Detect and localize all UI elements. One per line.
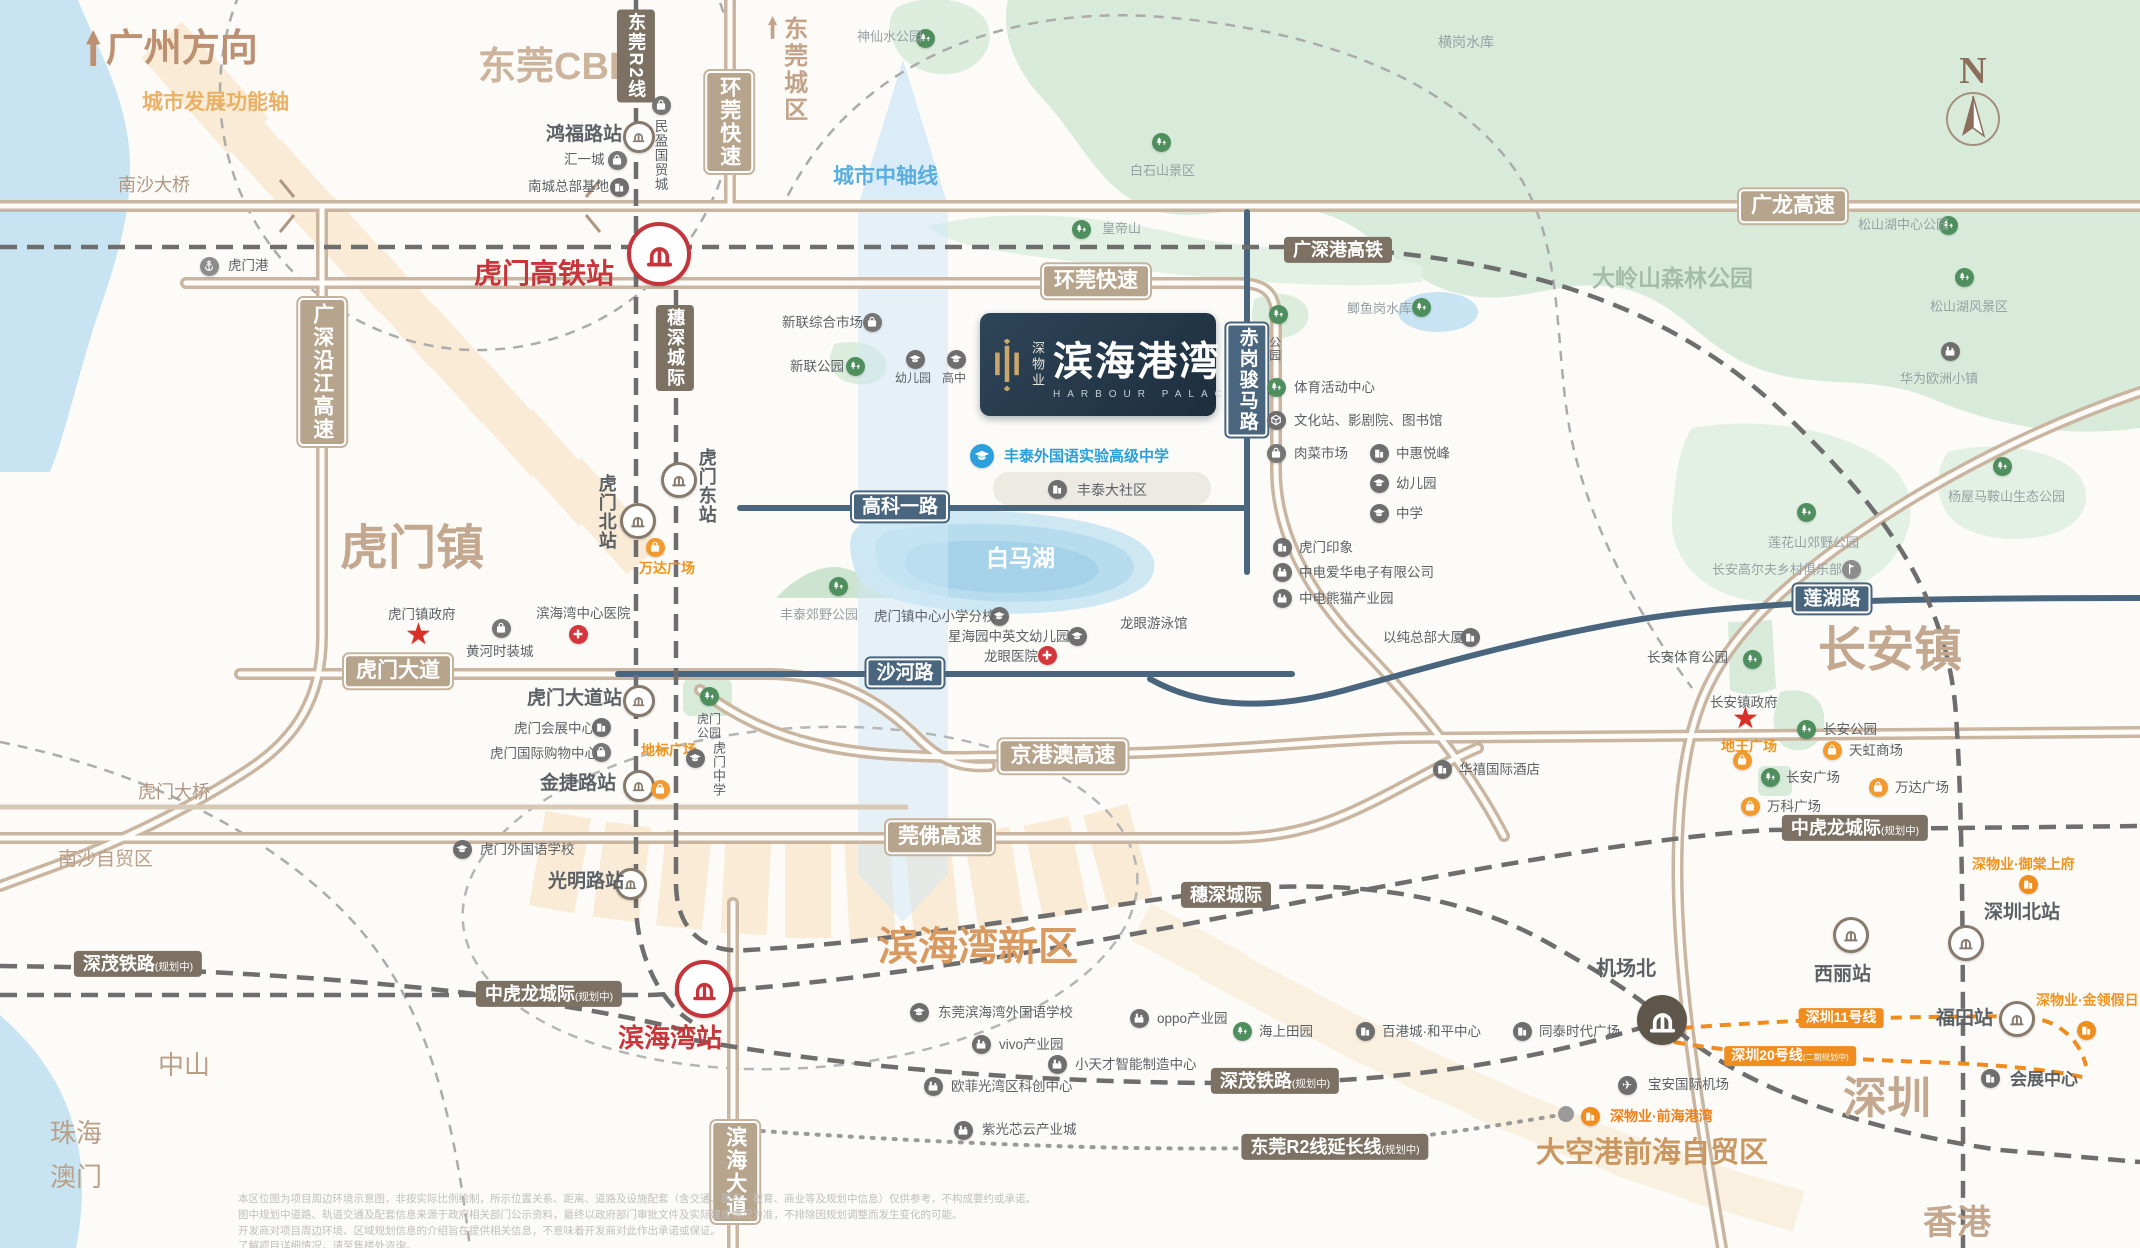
area-label-5: 长安镇 [1818,626,1962,676]
metro-station-icon [661,462,697,498]
line-label-text: 莲湖路 [1803,588,1860,609]
poi-label: 深物业·御棠上府 [1972,856,2075,872]
tree-icon [1267,378,1286,397]
poi-label: 同泰时代广场 [1539,1024,1620,1040]
line-label-22: 深圳20号线(二期规划中) [1724,1046,1856,1066]
bld-icon [1981,1069,2000,1088]
poi-label: 滨海湾中心医院 [536,606,631,622]
poi-label: 深物业·前海港湾 [1610,1108,1713,1124]
metro-station-icon [620,503,656,539]
anchor-icon [200,257,219,276]
line-label-18: 沙河路 [866,658,943,687]
disclaimer-line: 本区位图为项目周边环境示意图，非按实际比例绘制，所示位置关系、距离、道路及设施配… [238,1192,1188,1208]
bagO-icon [1869,778,1888,797]
poi-label: 虎门印象 [1299,540,1353,556]
cap-icon [686,749,705,768]
poi-label: 福田站 [1936,1008,1993,1030]
bagO-icon [651,780,670,799]
poi-label: 以纯总部大厦 [1383,630,1464,646]
tree-icon [1072,220,1091,239]
bagO-icon [646,538,665,557]
poi-label: 光明路站 [548,871,624,893]
line-label-text: 中虎龙城际 [1791,818,1881,838]
poi-label: 民盈国贸城 [652,119,668,192]
tree-icon [1955,268,1974,287]
area-label-8: 深圳 [1843,1076,1931,1122]
capB-icon [970,444,994,468]
area-label-text: 东莞CBD [478,48,636,88]
line-label-6: 广深沿江高速 [298,298,346,446]
area-label-7: 大空港前海自贸区 [1536,1138,1768,1168]
area-label-10: 中山 [158,1052,210,1079]
line-label-text: 赤岗骏马路 [1237,328,1258,433]
poi-label: 紫光芯云产业城 [982,1122,1077,1138]
poi-label: 虎门镇政府 [388,607,456,623]
cap-icon [910,1003,929,1022]
area-label-9: 香港 [1923,1206,1991,1242]
area-label-text: 南沙大桥 [118,176,190,195]
poi-label: 虎门港 [228,258,269,274]
poi-label: 虎门镇中心小学分校 [874,609,996,625]
poi-label: 虎门东站 [696,448,717,524]
harbour-palace-logo-icon [990,339,1024,391]
line-label-20: 赤岗骏马路 [1226,324,1267,437]
poi-label: 西丽站 [1814,964,1871,986]
poi-label: 星海园中英文幼儿园 [948,629,1070,645]
compass: N [1942,52,2004,153]
line-label-text: 深茂铁路 [1220,1071,1292,1091]
poi-label: 龙眼医院 [984,649,1038,665]
line-label-3: 京港澳高速 [999,739,1128,773]
fac-icon [972,1035,991,1054]
line-label-4: 莞佛高速 [886,820,994,854]
line-label-21: 深圳11号线 [1799,1008,1884,1028]
metro-station-icon [623,685,655,717]
poi-label: 黄河时装城 [466,644,534,660]
city-axis-band [858,60,948,922]
cube-icon [1267,411,1286,430]
poi-label: 公园 [1267,336,1281,362]
poi-label: 虎门高铁站 [474,258,614,290]
poi-label: 文化站、影剧院、图书馆 [1294,413,1443,429]
area-label-text: 深圳 [1843,1076,1931,1122]
metro-station-icon [1999,1001,2035,1037]
area-label-text: 东莞城区 [780,16,805,124]
disclaimer-text: 本区位图为项目周边环境示意图，非按实际比例绘制，所示位置关系、距离、道路及设施配… [238,1192,1188,1248]
line-label-11: 穗深城际 [1181,882,1271,908]
poi-label: 丰泰大社区 [1077,482,1147,498]
poi-label: 虎门国际购物中心 [490,746,598,762]
poi-label: 华禧国际酒店 [1459,762,1540,778]
line-label-13: 中虎龙城际(规划中) [1782,815,1928,841]
line-label-8: 广深港高铁 [1284,237,1392,263]
poi-label: 金捷路站 [540,773,616,795]
poi-label: 幼儿园 [895,372,931,386]
line-label-text: 穗深城际 [1190,885,1262,905]
tree-icon [1743,650,1762,669]
line-label-suffix: (规划中) [1292,1079,1330,1090]
area-label-text: 广州方向 [106,30,258,70]
poi-label: 小天才智能制造中心 [1075,1057,1197,1073]
area-label-text: 大空港前海自贸区 [1536,1138,1768,1168]
poi-label: 深圳北站 [1984,902,2060,924]
area-label-17: 白马湖 [986,546,1055,570]
poi-label: 虎门外国语学校 [480,842,575,858]
line-label-text: 东莞R2线延长线 [1250,1137,1381,1157]
metro-station-icon [1948,925,1984,961]
project-logo-card: 深物业 滨海港湾 HARBOUR PALACE [980,313,1216,416]
line-label-suffix: (规划中) [1381,1145,1419,1156]
line-label-12: 中虎龙城际(规划中) [476,981,622,1007]
metro-station-icon [623,770,655,802]
poi-label: 汇一城 [564,152,605,168]
railway-station-icon [1637,995,1687,1045]
tree-icon [700,687,719,706]
area-label-1: 城市发展功能轴 [142,92,289,114]
area-label-text: 滨海湾新区 [878,926,1078,968]
line-label-text: 广深港高铁 [1293,240,1383,260]
area-label-text: 城市中轴线 [833,166,938,188]
tree-icon [1993,457,2012,476]
poi-label: 丰泰郊野公园 [780,608,858,623]
fac-icon [924,1077,943,1096]
poi-label: 深物业·金领假日 [2036,992,2139,1008]
poi-label: 长安公园 [1823,722,1877,738]
tree-icon [1412,298,1431,317]
project-name-en: HARBOUR PALACE [1053,389,1243,400]
bld-icon [1513,1022,1532,1041]
line-label-0: 环莞快速 [705,71,753,173]
area-label-text: 大岭山森林公园 [1592,266,1753,290]
poi-label: 虎门公园 [692,713,726,741]
tree-icon [1233,1022,1252,1041]
direction-arrow-icon [768,16,777,39]
line-label-text: 沙河路 [876,662,933,683]
tree-icon [846,357,865,376]
line-label-2: 广龙高速 [1739,189,1847,223]
poi-label: 长安体育公园 [1647,650,1728,666]
line-label-text: 高科一路 [862,496,938,517]
cap-icon [1370,504,1389,523]
poi-label: 莲花山郊野公园 [1768,536,1859,551]
area-label-text: 长安镇 [1818,626,1962,676]
poi-label: 会展中心 [2010,1070,2078,1090]
line-label-suffix: (规划中) [575,992,613,1003]
cap-icon [1068,627,1087,646]
bld-icon [1356,1022,1375,1041]
bld-icon [1433,760,1452,779]
location-map: N 深物业 滨海港湾 HARBOUR PALACE 广 [0,0,2140,1248]
bldO-icon [2077,1021,2096,1040]
bag-icon [492,619,511,638]
poi-label: 南城总部基地 [528,179,609,195]
poi-label: 万科广场 [1767,799,1821,815]
line-label-14: 深茂铁路(规划中) [74,951,202,977]
poi-label: 虎门北站 [596,474,617,550]
poi-label: 虎门大道站 [527,688,622,710]
poi-label: 幼儿园 [1396,476,1437,492]
line-label-text: 环莞快速 [718,76,741,168]
area-label-18: 城市中轴线 [833,166,938,188]
tree-icon [1269,305,1288,324]
airport-icon: ✈ [1618,1076,1637,1095]
line-label-text: 广龙高速 [1751,194,1835,217]
poi-label: 东莞滨海湾外国语学校 [938,1005,1073,1021]
bldO-icon [1581,1107,1600,1126]
area-label-text: 中山 [158,1052,210,1079]
disclaimer-line: 开发商对项目周边环境、区域规划信息的介绍旨在提供相关信息，不意味着开发商对此作出… [238,1224,1188,1240]
line-label-suffix: (规划中) [155,962,193,973]
area-label-0: 广州方向 [86,30,258,70]
fac-icon [1048,1055,1067,1074]
bagO-icon [1741,797,1760,816]
poi-label: 丰泰外国语实验高级中学 [1004,448,1169,465]
fac-icon [954,1121,973,1140]
line-label-text: 虎门大道 [356,659,440,682]
fac-icon [1941,342,1960,361]
r2-extension-line [718,1106,1574,1149]
poi-label: 高中 [942,372,966,386]
poi-label: 长安广场 [1786,770,1840,786]
area-label-text: 白马湖 [986,546,1055,570]
direction-arrow-icon [86,30,100,66]
poi-label: 长安镇政府 [1710,695,1778,711]
poi-label: 皇帝山 [1102,222,1141,237]
line-label-text: 深茂铁路 [83,954,155,974]
area-label-13: 南沙自贸区 [58,850,153,870]
bag-icon [1267,444,1286,463]
area-label-text: 虎门大桥 [138,783,210,802]
poi-label: 杨屋马鞍山生态公园 [1948,490,2065,505]
railway-station-icon [675,960,733,1018]
cross-icon [1038,646,1057,665]
disclaimer-line: 了解项目详细情况，请至售楼处咨询。 [238,1239,1188,1248]
poi-label: 欧菲光湾区科创中心 [951,1079,1073,1095]
bld-icon [610,178,629,197]
line-label-17: 高科一路 [852,492,948,521]
poi-label: 天虹商场 [1849,743,1903,759]
tree-icon [829,577,848,596]
area-label-text: 南沙自贸区 [58,850,153,870]
poi-label: 白石山景区 [1130,164,1195,179]
poi-label: 中电爱华电子有限公司 [1299,565,1434,581]
area-label-2: 东莞CBD [478,48,636,88]
area-label-6: 滨海湾新区 [878,926,1078,968]
area-label-11: 珠海 [50,1120,102,1147]
line-label-text: 东莞R2线 [626,12,646,99]
line-label-text: 环莞快速 [1054,269,1138,292]
poi-label: 宝安国际机场 [1648,1077,1729,1093]
area-label-text: 虎门镇 [340,524,484,574]
poi-label: 松山湖中心公园 [1858,218,1949,233]
railway-station-icon [627,222,691,286]
disclaimer-line: 图中规划中道路、轨道交通及配套信息来源于政府相关部门公示资料，最终以政府部门审批… [238,1208,1188,1224]
poi-label: 中学 [1396,506,1423,522]
poi-label: 万达广场 [638,560,696,576]
tree-icon [1797,720,1816,739]
poi-label: 鲫鱼岗水库 [1347,302,1412,317]
project-name: 滨海港湾 [1053,329,1243,387]
bag-icon [652,96,671,115]
line-label-10: 东莞R2线 [617,9,655,102]
line-label-19: 莲湖路 [1793,584,1870,613]
fac-icon [1273,563,1292,582]
line-label-text: 深圳20号线 [1731,1047,1803,1063]
area-label-16: 大岭山森林公园 [1592,266,1753,290]
poi-label: 鸿福路站 [546,124,622,146]
area-label-15: 南沙大桥 [118,176,190,195]
line-label-1: 环莞快速 [1042,264,1150,298]
compass-n-label: N [1942,52,2004,90]
tree-icon [1797,503,1816,522]
bld-icon [1048,480,1067,499]
compass-rose-icon [1944,90,2002,148]
tree-icon [1152,133,1171,152]
line-label-16: 东莞R2线延长线(规划中) [1241,1134,1428,1160]
poi-label: 横岗水库 [1438,34,1494,50]
government-star-icon: ★ [405,620,432,650]
golf-icon [1842,560,1861,579]
area-label-text: 城市发展功能轴 [142,92,289,114]
poi-label: 中惠悦峰 [1396,446,1450,462]
poi-label: 万达广场 [1895,780,1949,796]
poi-label: 新联综合市场 [782,315,863,331]
cap-icon [947,350,966,369]
area-label-12: 澳门 [50,1164,102,1191]
poi-label: 长安高尔夫乡村俱乐部 [1712,563,1842,578]
tree-icon [1761,768,1780,787]
bld-icon [1370,444,1389,463]
fac-icon [1130,1009,1149,1028]
poi-label: 滨海湾站 [618,1024,722,1054]
bldO-icon [2019,875,2038,894]
metro-station-icon [623,121,655,153]
bld-icon [1273,538,1292,557]
poi-label: 地王广场 [1721,738,1777,754]
cap-icon [906,350,925,369]
line-label-9: 穗深城际 [656,305,694,391]
line-label-suffix: (规划中) [1881,826,1919,837]
line-label-text: 广深沿江高速 [311,303,334,441]
line-label-text: 莞佛高速 [898,825,982,848]
line-label-suffix: (二期规划中) [1803,1053,1849,1062]
area-label-text: 香港 [1923,1206,1991,1242]
line-label-text: 深圳11号线 [1806,1009,1877,1025]
fac-icon [1273,589,1292,608]
poi-label: 神仙水公园 [857,30,922,45]
poi-label: 华为欧洲小镇 [1900,372,1978,387]
area-label-text: 珠海 [50,1120,102,1147]
line-label-5: 虎门大道 [344,654,452,688]
line-label-text: 穗深城际 [665,308,685,388]
line-label-text: 京港澳高速 [1011,744,1116,767]
poi-label: 虎门中学 [710,741,725,797]
bag-icon [863,313,882,332]
poi-label: 中电熊猫产业园 [1299,591,1394,607]
bag-icon [608,151,627,170]
cap-icon [453,840,472,859]
metro-station-icon [1833,917,1869,953]
developer-brand: 深物业 [1028,341,1047,389]
poi-label: oppo产业园 [1157,1011,1228,1027]
poi-label: 机场北 [1596,958,1656,981]
line-label-15: 深茂铁路(规划中) [1211,1068,1339,1094]
poi-label: 肉菜市场 [1294,446,1348,462]
poi-label: 松山湖风景区 [1930,300,2008,315]
cap-icon [1370,474,1389,493]
poi-label: 百港城·和平中心 [1382,1024,1481,1040]
line-label-text: 中虎龙城际 [485,984,575,1004]
poi-label: 虎门会展中心 [514,721,595,737]
poi-label: 龙眼游泳馆 [1120,616,1188,632]
area-label-3: 东莞城区 [768,16,806,124]
poi-label: 海上田园 [1259,1024,1313,1040]
area-label-4: 虎门镇 [340,524,484,574]
poi-label: 新联公园 [790,359,844,375]
poi-label: vivo产业园 [999,1037,1064,1053]
area-label-text: 澳门 [50,1164,102,1191]
cross-icon [569,625,588,644]
bagO-icon [1823,741,1842,760]
poi-label: 体育活动中心 [1294,380,1375,396]
area-label-14: 虎门大桥 [138,783,210,802]
